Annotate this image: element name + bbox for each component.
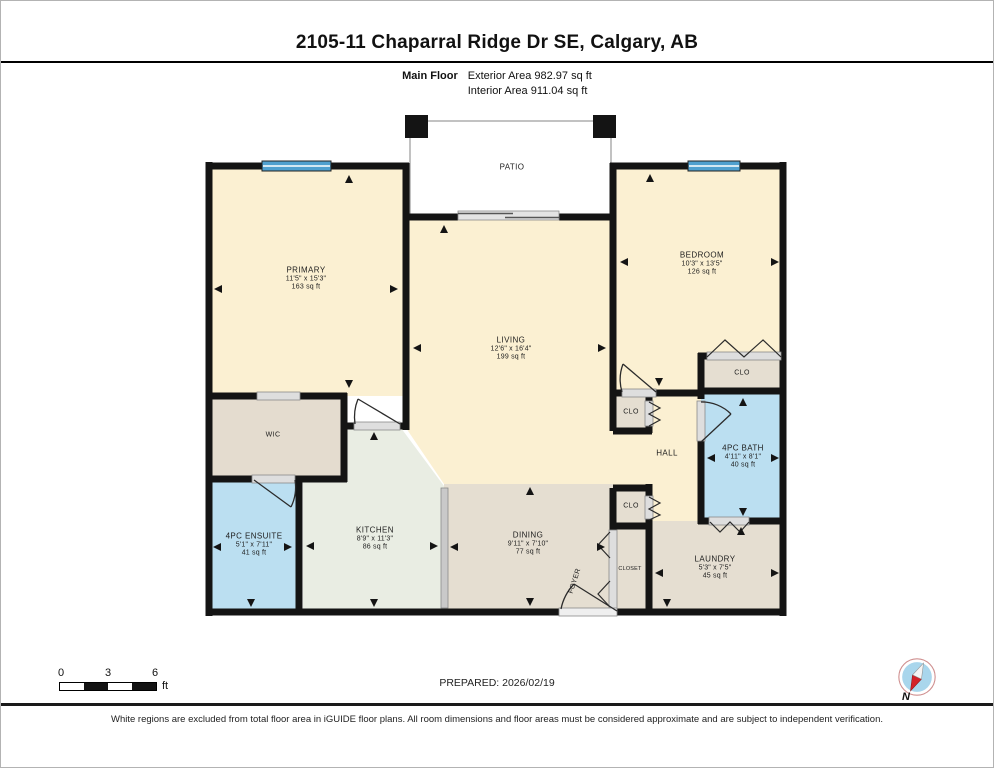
room-label-patio: PATIO (500, 163, 525, 172)
compass: N (895, 655, 939, 707)
compass-north-label: N (902, 691, 910, 703)
patio-pillar-right (593, 115, 616, 138)
room-label-kitchen: KITCHEN 8'9" x 11'3" 86 sq ft (356, 526, 394, 551)
room-label-bath: 4PC BATH 4'11" x 8'1" 40 sq ft (722, 444, 764, 469)
floor-plan-page: 2105-11 Chaparral Ridge Dr SE, Calgary, … (0, 0, 994, 768)
prepared-date: PREPARED: 2026/02/19 (1, 677, 993, 689)
floorplan-canvas (1, 1, 994, 768)
patio-pillar-left (405, 115, 428, 138)
footer-divider (1, 703, 993, 706)
room-label-ensuite: 4PC ENSUITE 5'1" x 7'11" 41 sq ft (226, 532, 283, 557)
room-label-dining: DINING 9'11" x 7'10" 77 sq ft (508, 531, 548, 556)
room-label-primary: PRIMARY 11'5" x 15'3" 163 sq ft (286, 266, 326, 291)
room-label-hall: HALL (656, 449, 678, 458)
kitchen-counter (441, 488, 448, 608)
room-label-clo-bedroom: CLO (734, 370, 750, 377)
disclaimer-text: White regions are excluded from total fl… (1, 714, 993, 725)
room-label-laundry: LAUNDRY 5'3" x 7'5" 45 sq ft (695, 555, 736, 580)
room-label-clo-hall-lower: CLO (623, 503, 639, 510)
room-label-clo-hall-upper: CLO (623, 409, 639, 416)
room-label-living: LIVING 12'6" x 16'4" 199 sq ft (491, 336, 532, 361)
room-label-wic: WIC (266, 432, 281, 439)
room-label-closet: CLOSET (618, 566, 641, 572)
room-label-bedroom: BEDROOM 10'3" x 13'5" 126 sq ft (680, 251, 724, 276)
